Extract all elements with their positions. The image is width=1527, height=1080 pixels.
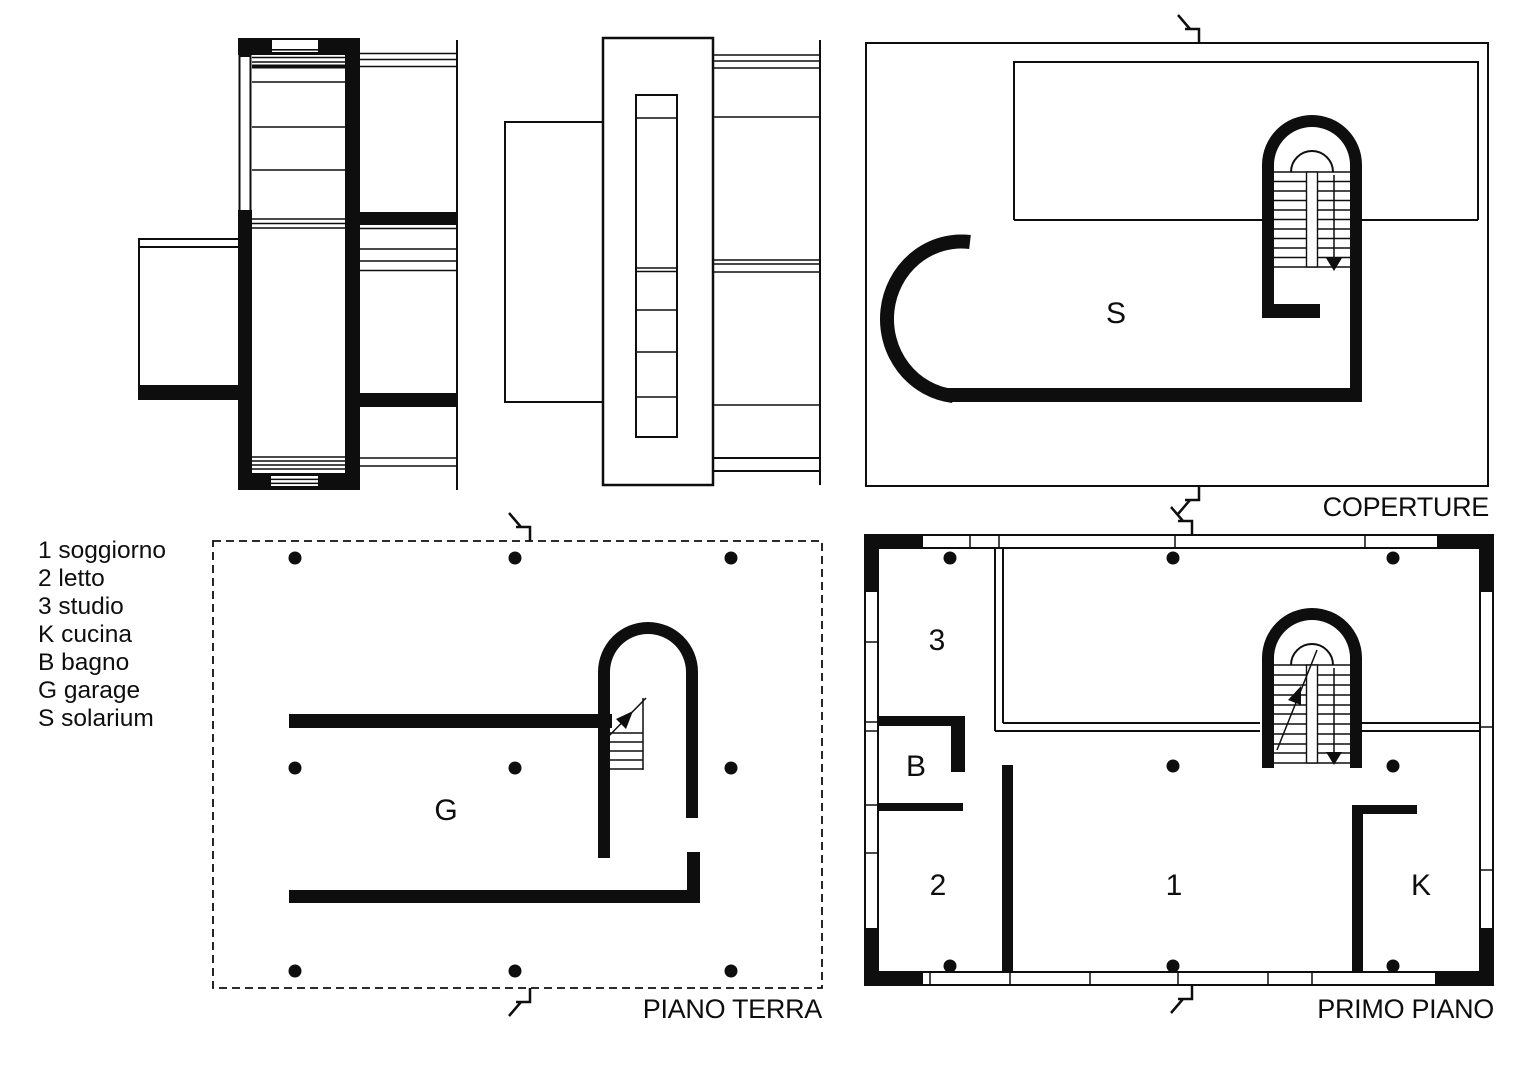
column-dot [944,552,957,565]
corner-block [865,928,878,985]
drawing-canvas: S COPERTURE [0,0,1527,1080]
legend-item: B bagno [38,649,129,676]
piano-terra-columns [289,552,738,978]
column-dot [944,960,957,973]
section-cut-mark [1171,985,1192,1013]
column-dot [1387,760,1400,773]
column-dot [509,762,522,775]
column-dot [725,762,738,775]
elevation-drawing [505,38,820,485]
stair-down-arrow [1326,668,1342,765]
column-dot [725,552,738,565]
column-dot [725,965,738,978]
plan-piano-terra: G PIANO TERRA [213,513,822,1024]
section-left-wing [138,238,238,400]
elevation-rear-volume [713,40,820,485]
section-cut-mark [1178,486,1199,514]
coperture-roof-slab [1014,62,1478,220]
stair-divider [1307,172,1318,267]
curved-wall [887,241,970,396]
piano-terra-stair [598,622,698,858]
column-dot [289,552,302,565]
legend-item: 3 studio [38,593,124,620]
column-dot [1167,552,1180,565]
plan-title-primo-piano: PRIMO PIANO [1317,994,1494,1024]
corner-block [865,535,878,592]
room-label-letto: 2 [930,869,947,902]
section-cut-mark [509,988,530,1016]
room-label-cucina: K [1411,869,1431,902]
room-label-soggiorno: 1 [1166,869,1183,902]
stair-inner-arch [1291,151,1333,172]
letto-partition-wall [1002,765,1013,972]
legend-item: K cucina [38,621,132,648]
plan-primo-piano: 3 B 2 1 K PRIMO PIANO [865,507,1494,1024]
legend-item: 1 soggiorno [38,537,166,564]
primo-piano-stair [1262,608,1362,768]
column-dot [509,552,522,565]
column-dot [1387,552,1400,565]
coperture-stair [1262,115,1362,402]
room-label-solarium: S [1106,297,1126,330]
plan-title-coperture: COPERTURE [1323,492,1489,522]
stair-treads [610,698,643,770]
section-tower-floors [252,58,345,470]
primo-piano-void-partition [995,549,1479,731]
room-label-bagno: B [906,750,926,783]
column-dot [1167,960,1180,973]
column-dot [289,762,302,775]
room-label-studio: 3 [929,624,946,657]
elevation-garage-wing [505,122,603,402]
section-drawing [138,38,457,490]
section-tower-walls [238,38,360,490]
stair-down-arrow [1326,175,1342,271]
section-cut-mark [509,513,530,541]
room-label-garage: G [434,794,457,827]
section-right-wing [360,40,457,490]
plan-coperture: S COPERTURE [866,15,1489,522]
legend: 1 soggiorno 2 letto 3 studio K cucina B … [38,537,166,732]
column-dot [1167,760,1180,773]
coperture-boundary [866,43,1488,486]
section-cut-mark [1178,15,1199,43]
column-dot [509,965,522,978]
column-dot [1387,960,1400,973]
legend-item: 2 letto [38,565,105,592]
corner-block [1480,535,1493,592]
cucina-walls [1352,805,1417,972]
elevation-window-strip [636,95,677,437]
plan-title-piano-terra: PIANO TERRA [643,994,823,1024]
corner-block [1480,928,1493,985]
architectural-sheet: S COPERTURE [0,0,1527,1080]
legend-item: S solarium [38,705,154,732]
stair-divider [1307,665,1318,763]
column-dot [289,965,302,978]
elevation-tower [603,38,713,485]
legend-item: G garage [38,677,140,704]
